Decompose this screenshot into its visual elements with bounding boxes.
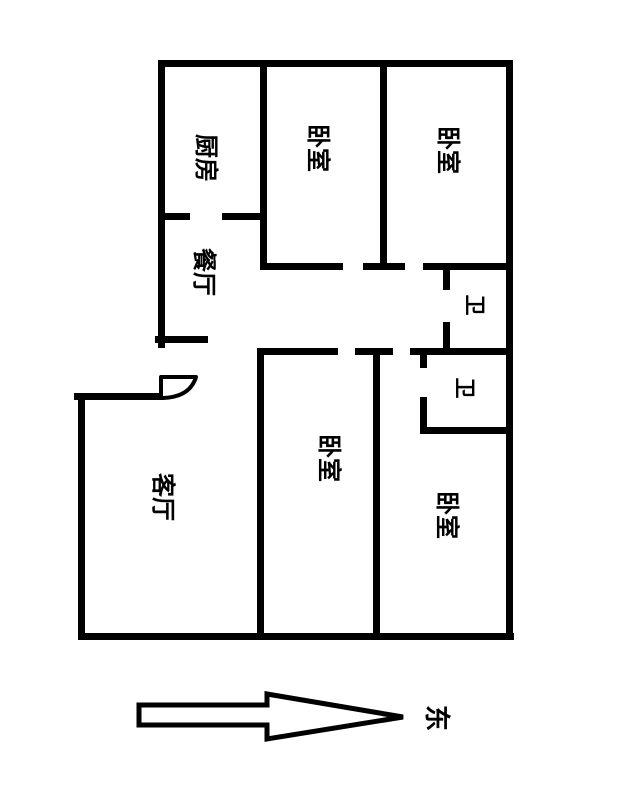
floorplan-canvas: 厨房餐厅卧室卧室卫卫卧室客厅卧室东 xyxy=(0,0,619,791)
door-swing-icon xyxy=(161,377,196,398)
shapes-layer xyxy=(0,0,619,791)
east-arrow-icon xyxy=(139,694,403,739)
